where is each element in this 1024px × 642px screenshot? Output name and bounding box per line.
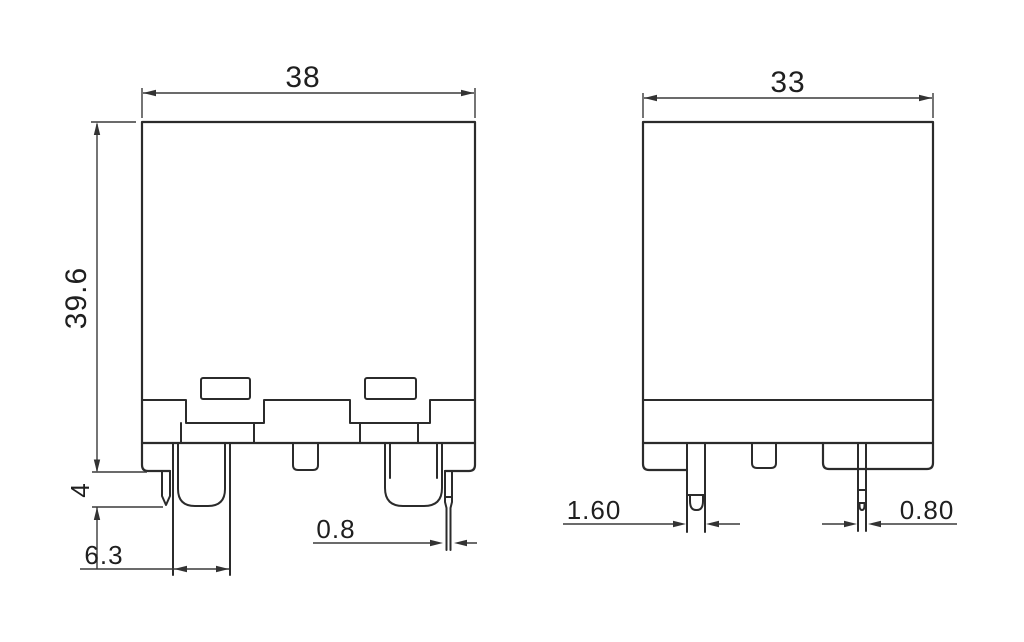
dim-label-blade-width: 6.3 <box>84 540 123 570</box>
dim-label-front-width: 38 <box>285 61 320 94</box>
dim-label-front-pin-thickness: 0.8 <box>316 514 355 544</box>
dim-label-front-height: 39.6 <box>60 267 93 329</box>
dim-label-coil-pin-width: 1.60 <box>567 495 622 525</box>
dim-label-pin-standoff: 4 <box>65 482 95 497</box>
dim-label-side-width: 33 <box>770 66 805 99</box>
relay-dimension-drawing: 38 39.6 4 6.3 0.8 <box>0 0 1024 642</box>
dim-label-side-pin-thickness: 0.80 <box>900 495 955 525</box>
technical-drawing-page: 38 39.6 4 6.3 0.8 <box>0 0 1024 642</box>
paper-background <box>0 0 1024 642</box>
